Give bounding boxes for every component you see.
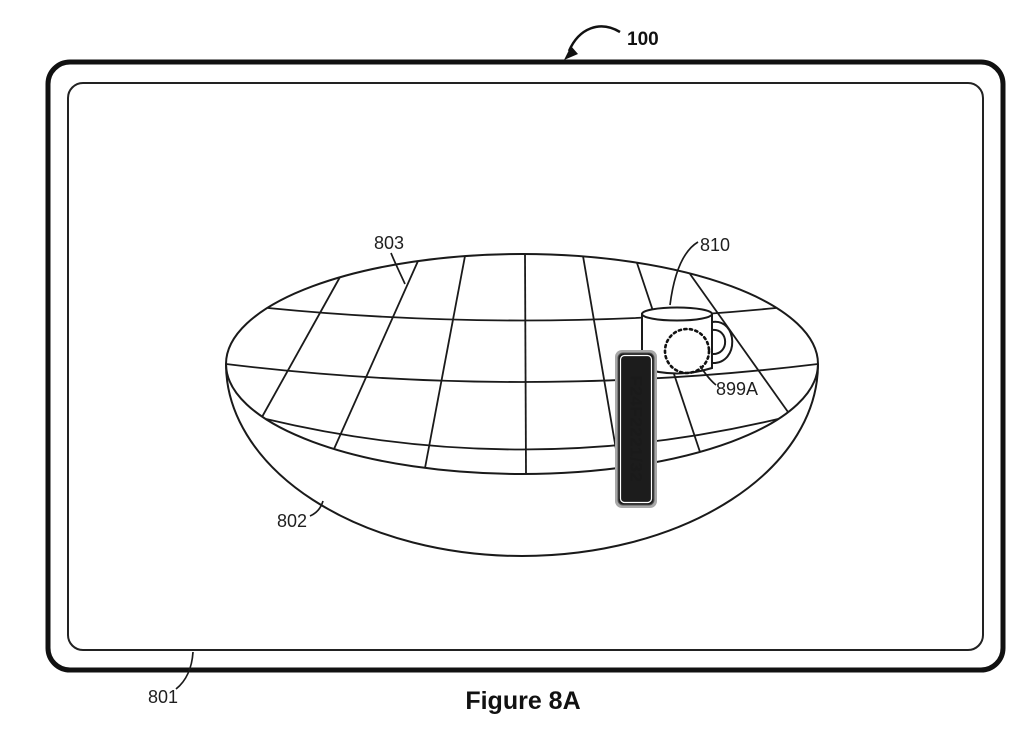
bowl-outline (226, 254, 818, 556)
ref-810-label: 810 (700, 235, 730, 255)
chip-text: F24F2221/32 (627, 376, 646, 483)
ref-899a-label: 899A (716, 379, 758, 399)
classification-chip: F24F2221/32 (615, 350, 657, 508)
grid-meridian-3 (425, 256, 465, 468)
bowl-rim-ellipse (226, 254, 818, 474)
grid-meridian-1 (262, 277, 340, 417)
ref-801-label: 801 (148, 687, 178, 707)
patent-figure-page: 100 801 803 802 810 (0, 0, 1024, 741)
ref-100-leader-arrow (569, 26, 620, 51)
grid-meridian-5 (583, 256, 619, 467)
grid-surface (226, 254, 818, 474)
grid-meridian-2 (334, 261, 418, 449)
ref-100-arrowhead-icon (564, 46, 578, 60)
ref-803-label: 803 (374, 233, 404, 253)
figure-caption: Figure 8A (465, 687, 580, 715)
ref-803-leader (391, 253, 405, 284)
figure-8a-drawing: 100 801 803 802 810 (0, 0, 1024, 741)
grid-latitude-3 (266, 419, 778, 450)
ref-802-label: 802 (277, 511, 307, 531)
ref-100-label: 100 (627, 29, 659, 50)
mug-rim (642, 308, 712, 321)
grid-meridian-4 (525, 254, 526, 474)
